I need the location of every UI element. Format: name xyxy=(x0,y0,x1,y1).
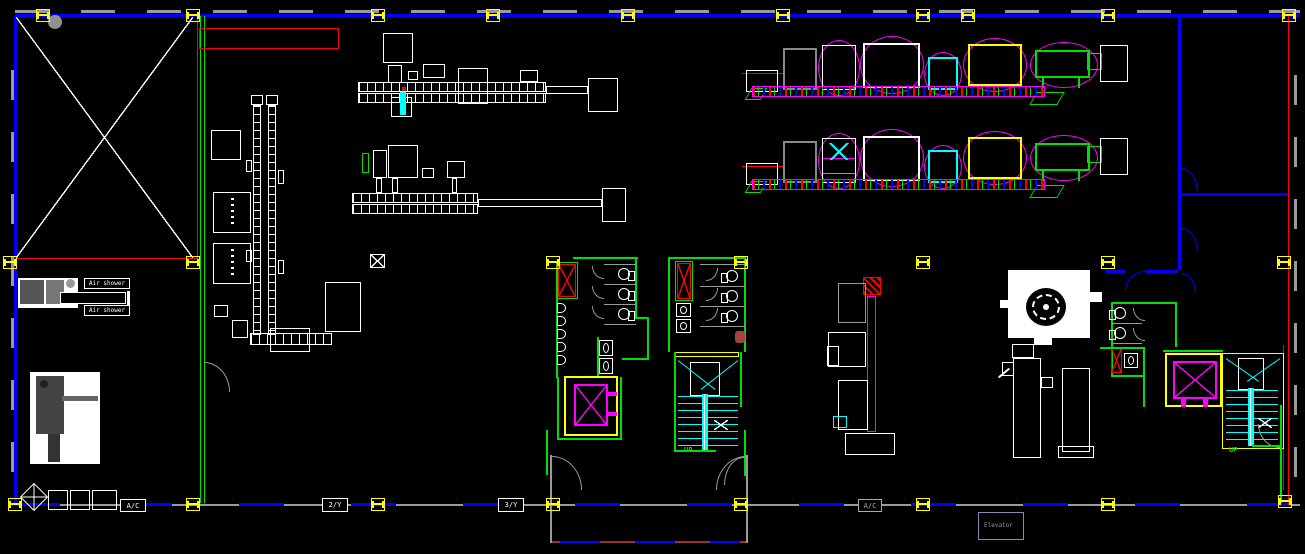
grid-column-marker xyxy=(36,9,50,22)
machine-gray-frame xyxy=(783,141,817,183)
machine-part xyxy=(214,305,228,317)
elevator-door xyxy=(1181,398,1186,407)
floor-plan-canvas[interactable]: Air shower Air shower xyxy=(0,0,1305,554)
end-station xyxy=(602,188,626,222)
urinal xyxy=(557,316,566,326)
machine-part xyxy=(422,168,434,178)
stall-door-arc xyxy=(1133,308,1145,321)
machine-yellow-frame xyxy=(968,137,1022,179)
conveyor-extension xyxy=(478,199,602,207)
stall-door-arc xyxy=(706,268,718,281)
elevator-door xyxy=(608,392,617,396)
green-partition-1 xyxy=(200,16,201,503)
end-buffer xyxy=(1100,138,1128,175)
grid-tag: 3/Y xyxy=(498,498,524,512)
grid-column-marker xyxy=(734,498,748,511)
end-station xyxy=(325,282,361,332)
stall-door-arc xyxy=(1133,328,1145,341)
toilet xyxy=(618,268,630,280)
toilet xyxy=(1114,327,1126,339)
machine-part xyxy=(232,320,248,338)
break-mark xyxy=(714,420,728,430)
wall-green xyxy=(1163,350,1223,352)
end-buffer xyxy=(1100,45,1128,82)
machine-part xyxy=(246,250,252,262)
equipment-pad xyxy=(70,490,90,510)
door-arc xyxy=(204,362,230,392)
wall-green xyxy=(557,438,622,440)
transfer-conveyor xyxy=(752,179,1045,190)
machine-part xyxy=(1058,446,1094,458)
ac-unit-label: A/C xyxy=(858,499,882,512)
machine-station xyxy=(458,68,488,104)
grid-column-marker xyxy=(371,9,385,22)
grid-column-marker xyxy=(916,9,930,22)
buffer-table xyxy=(845,433,895,455)
wall-green xyxy=(1252,445,1282,447)
machine-part xyxy=(270,328,310,352)
stair-treads xyxy=(678,396,738,448)
cyan-lift xyxy=(400,92,406,115)
stall-partition xyxy=(604,324,636,325)
machine-tab xyxy=(1000,300,1008,308)
machine-part xyxy=(246,160,252,172)
elevator-label: Elevator xyxy=(984,522,1013,529)
window-band-left xyxy=(11,70,14,500)
sink xyxy=(676,303,691,317)
conveyor-rail xyxy=(358,82,546,92)
wall-green xyxy=(557,377,559,440)
toilet xyxy=(1114,307,1126,319)
wall-blue xyxy=(1105,270,1125,273)
grid-column-marker xyxy=(776,9,790,22)
stall-partition xyxy=(700,306,746,307)
window-band-right xyxy=(1294,75,1297,505)
machine-post xyxy=(376,178,382,193)
machine-part xyxy=(211,130,241,160)
machine-yellow-frame xyxy=(968,44,1022,86)
sink xyxy=(599,358,613,374)
elevator-door xyxy=(1203,398,1208,407)
transfer-conveyor xyxy=(752,86,1045,97)
conveyor-cap xyxy=(266,95,278,105)
grid-column-marker xyxy=(734,256,748,269)
wall-green xyxy=(1143,347,1145,407)
grid-column-marker xyxy=(186,256,200,269)
machine-part xyxy=(520,70,538,82)
stall-door-arc xyxy=(592,266,604,279)
machine-post xyxy=(452,178,457,193)
control-panel xyxy=(423,64,445,78)
machine-knob xyxy=(40,380,48,388)
conveyor-rail xyxy=(352,193,478,203)
wall-green xyxy=(1111,375,1143,377)
conveyor-extension xyxy=(546,86,588,94)
stair-well xyxy=(690,362,720,396)
stair-center-rail xyxy=(702,394,708,450)
machine-part xyxy=(20,280,44,304)
toilet xyxy=(618,288,630,300)
toilet xyxy=(726,270,738,282)
stair-up-label: UP xyxy=(684,446,692,454)
grid-column-marker xyxy=(1101,9,1115,22)
rack-cabinet xyxy=(213,192,251,233)
stall-partition xyxy=(604,304,636,305)
elevator-door xyxy=(608,412,617,416)
machine-leg xyxy=(1078,78,1080,88)
stall-door-arc xyxy=(706,288,718,301)
stall-partition xyxy=(700,286,746,287)
entry-door-arc xyxy=(552,456,582,490)
section-diamond-symbol xyxy=(20,483,48,511)
conveyor-cap xyxy=(251,95,263,105)
column-symbol xyxy=(370,254,385,268)
equipment-pad xyxy=(92,490,117,510)
machine-knob xyxy=(66,279,75,288)
stair-up-label: UP xyxy=(1229,446,1237,454)
grid-tag: 2/Y xyxy=(322,498,348,512)
machine-part xyxy=(373,150,387,178)
wall-green xyxy=(620,377,622,440)
machine-white-chamber xyxy=(863,43,920,88)
machine-gray-frame xyxy=(783,48,817,90)
air-shower-label: Air shower xyxy=(84,305,130,316)
wall-green xyxy=(622,358,649,360)
grid-column-marker xyxy=(546,256,560,269)
stair-well xyxy=(1238,358,1264,390)
duct-shaft-cross xyxy=(1111,348,1122,373)
exterior-elevator-box: Elevator xyxy=(978,512,1024,540)
rotary-hub xyxy=(1043,304,1049,310)
grid-column-marker xyxy=(916,256,930,269)
grid-column-marker xyxy=(546,498,560,511)
vertical-conveyor xyxy=(867,296,876,432)
stall-partition xyxy=(604,264,636,265)
grid-column-marker xyxy=(1101,498,1115,511)
red-zone-rectangle xyxy=(199,28,339,49)
grid-machine xyxy=(1013,358,1041,458)
machine-part xyxy=(278,170,284,184)
machine-post xyxy=(392,178,398,193)
machine-part xyxy=(388,65,402,83)
stall-door-arc xyxy=(592,306,604,319)
grid-column-marker xyxy=(1101,256,1115,269)
air-shower-label: Air shower xyxy=(84,278,130,289)
machine-part xyxy=(827,346,839,366)
grid-column-marker xyxy=(961,9,975,22)
door-arc xyxy=(1181,273,1196,293)
wall-green xyxy=(635,257,637,319)
red-wall-line xyxy=(197,16,198,259)
grid-column-marker xyxy=(486,9,500,22)
duct-shaft-cross xyxy=(558,264,576,297)
grid-column-marker xyxy=(916,498,930,511)
control-panel xyxy=(447,161,465,178)
duct-shaft-cross xyxy=(677,263,691,299)
machine-part xyxy=(1012,344,1034,358)
machine-white-chamber xyxy=(863,136,920,181)
wall-green xyxy=(1280,405,1282,503)
wall-blue xyxy=(1145,270,1178,273)
machine-part xyxy=(833,416,847,428)
sink xyxy=(599,340,613,356)
stair-center-line xyxy=(1250,388,1251,446)
urinal xyxy=(557,355,566,365)
grid-column-marker xyxy=(1277,256,1291,269)
door-arc xyxy=(1181,228,1198,252)
urinal xyxy=(557,329,566,339)
stall-partition xyxy=(1112,343,1142,344)
grid-column-marker xyxy=(186,498,200,511)
entry-door-arc xyxy=(716,456,746,490)
wall-blue xyxy=(1178,193,1288,196)
grid-column-marker xyxy=(3,256,17,269)
grid-column-marker xyxy=(621,9,635,22)
machine-bonder xyxy=(822,45,856,90)
conveyor-rail-vertical xyxy=(268,105,276,335)
grid-column-marker xyxy=(8,498,22,511)
machine-leg xyxy=(1078,171,1080,181)
mop-sink xyxy=(735,331,745,343)
stall-partition xyxy=(1112,323,1142,324)
grid-column-marker xyxy=(186,9,200,22)
red-sensor xyxy=(402,87,406,91)
wall-green xyxy=(676,450,716,452)
wall-green xyxy=(674,352,676,452)
toilet xyxy=(618,308,630,320)
elevator-car xyxy=(1173,361,1217,399)
ac-unit-label: A/C xyxy=(120,499,146,512)
green-partition-2 xyxy=(204,16,205,503)
toilet xyxy=(726,310,738,322)
green-fixture xyxy=(362,153,369,173)
machine-station xyxy=(838,283,866,323)
machine-part xyxy=(48,434,60,462)
machine-bonder xyxy=(822,138,856,183)
sink xyxy=(1124,353,1138,368)
door-arc xyxy=(1181,168,1198,192)
machine-station xyxy=(388,145,418,178)
door-arc xyxy=(1125,271,1145,291)
stair-center-line xyxy=(704,394,705,450)
stall-partition xyxy=(700,326,746,327)
equipment-pad xyxy=(48,490,68,510)
stall-door-arc xyxy=(706,308,718,321)
machine-arm xyxy=(62,396,98,401)
vestibule-south-wall-blue xyxy=(560,541,740,543)
stair-landing-band xyxy=(675,352,739,357)
machine-green-oven xyxy=(1035,50,1090,78)
urinal xyxy=(557,303,566,313)
machine-part xyxy=(278,260,284,274)
grid-column-marker xyxy=(371,498,385,511)
grid-column-marker xyxy=(1282,9,1296,22)
machine-tab xyxy=(1034,338,1052,345)
wall-green xyxy=(546,430,548,475)
conveyor-rail xyxy=(352,204,478,214)
wall-green xyxy=(573,257,638,259)
wall-green xyxy=(1175,302,1177,347)
void-room-south-wall-red xyxy=(15,258,197,259)
urinal xyxy=(557,342,566,352)
machine-station xyxy=(383,33,413,63)
wall-green xyxy=(668,257,670,352)
conveyor-rail-vertical xyxy=(253,105,261,335)
stall-partition xyxy=(604,284,636,285)
wall-green xyxy=(1100,347,1145,349)
void-room-cross xyxy=(16,17,193,258)
end-station xyxy=(588,78,618,112)
machine-part xyxy=(408,71,418,80)
machine-part xyxy=(1041,377,1053,388)
wall-green xyxy=(1111,302,1177,304)
grid-column-marker xyxy=(1278,495,1292,508)
stall-door-arc xyxy=(592,286,604,299)
machine-green-oven xyxy=(1035,143,1090,171)
stair-center-rail xyxy=(1248,388,1254,446)
toilet xyxy=(726,290,738,302)
wall-green xyxy=(647,319,649,360)
elevator-car xyxy=(574,384,608,426)
sink xyxy=(676,319,691,333)
grid-machine xyxy=(1062,368,1090,452)
wall-green xyxy=(740,352,742,407)
tunnel-cap xyxy=(127,291,130,305)
machine-tab xyxy=(1090,292,1102,302)
conveyor-rail xyxy=(358,93,546,103)
pass-through-tunnel xyxy=(60,292,126,304)
